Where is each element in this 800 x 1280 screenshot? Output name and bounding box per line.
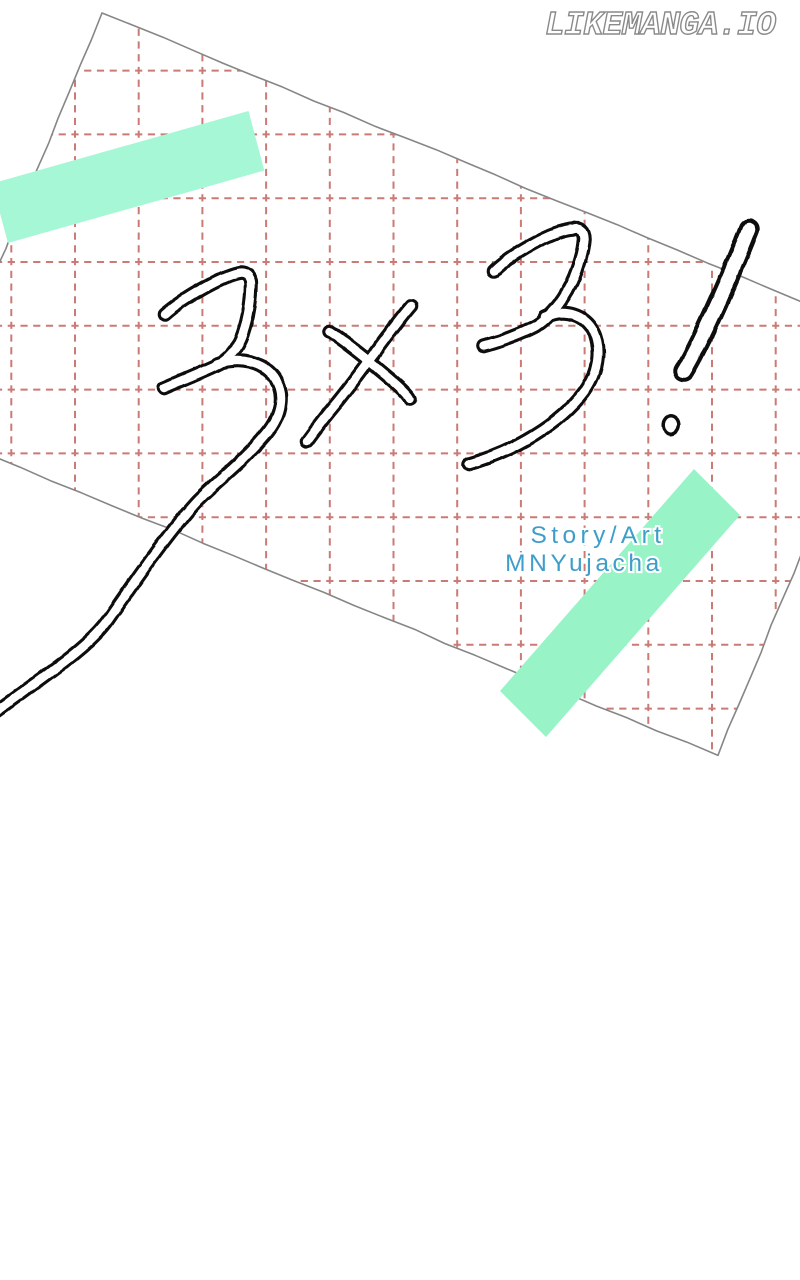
svg-text:Story/Art: Story/Art	[531, 522, 666, 549]
svg-text:MNYujacha: MNYujacha	[505, 550, 663, 577]
svg-text:LIKEMANGA.IO: LIKEMANGA.IO	[545, 7, 776, 44]
